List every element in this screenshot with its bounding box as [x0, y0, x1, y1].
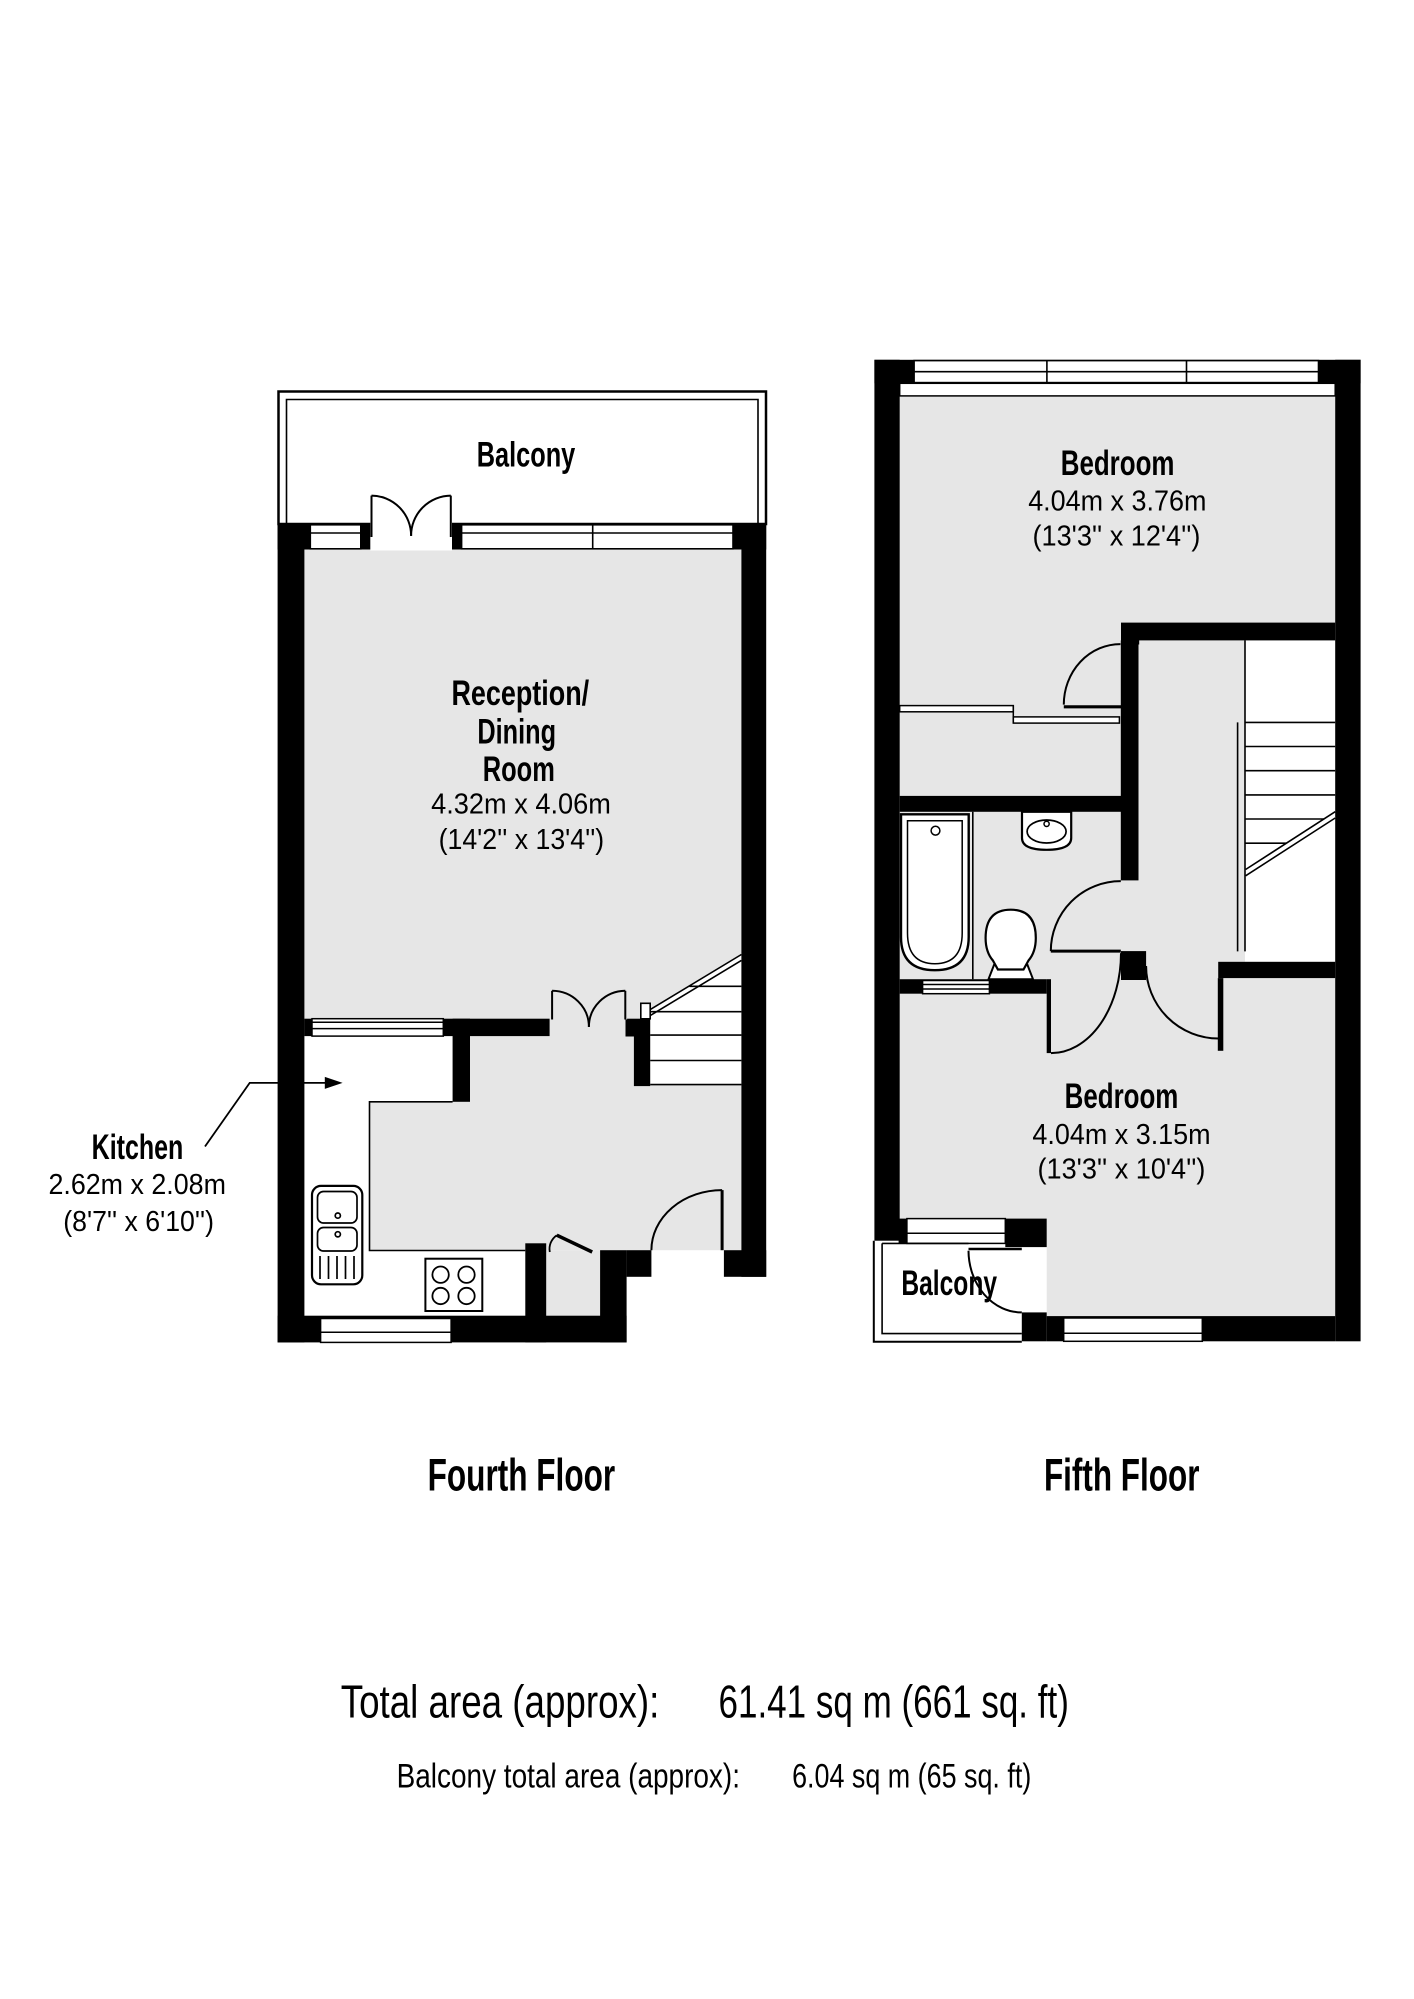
svg-text:4.04m x 3.15m: 4.04m x 3.15m: [1032, 1119, 1210, 1151]
svg-text:Bedroom: Bedroom: [1065, 1077, 1179, 1116]
svg-text:4.04m x 3.76m: 4.04m x 3.76m: [1028, 486, 1206, 518]
svg-text:Bedroom: Bedroom: [1061, 444, 1175, 483]
svg-text:(13'3'' x 10'4''): (13'3'' x 10'4''): [1038, 1154, 1206, 1186]
svg-text:Balcony: Balcony: [901, 1264, 997, 1303]
svg-text:Reception/: Reception/: [451, 674, 589, 713]
svg-text:4.32m x 4.06m: 4.32m x 4.06m: [431, 788, 611, 820]
svg-text:6.04 sq m (65 sq. ft): 6.04 sq m (65 sq. ft): [792, 1758, 1031, 1796]
svg-text:(14'2'' x 13'4''): (14'2'' x 13'4''): [439, 824, 605, 856]
svg-text:Room: Room: [483, 750, 555, 789]
svg-text:2.62m x 2.08m: 2.62m x 2.08m: [48, 1169, 226, 1201]
svg-text:Dining: Dining: [477, 712, 556, 751]
svg-text:Kitchen: Kitchen: [92, 1128, 184, 1167]
svg-text:Fifth Floor: Fifth Floor: [1044, 1450, 1200, 1501]
svg-text:Total area (approx):: Total area (approx):: [341, 1675, 660, 1727]
svg-text:61.41 sq m (661 sq. ft): 61.41 sq m (661 sq. ft): [719, 1675, 1069, 1727]
svg-text:Fourth Floor: Fourth Floor: [428, 1450, 616, 1501]
svg-text:Balcony total area (approx):: Balcony total area (approx):: [397, 1758, 740, 1796]
svg-text:(8'7'' x 6'10''): (8'7'' x 6'10''): [63, 1206, 214, 1238]
svg-text:Balcony: Balcony: [477, 436, 576, 475]
svg-text:(13'3'' x 12'4''): (13'3'' x 12'4''): [1033, 521, 1201, 553]
